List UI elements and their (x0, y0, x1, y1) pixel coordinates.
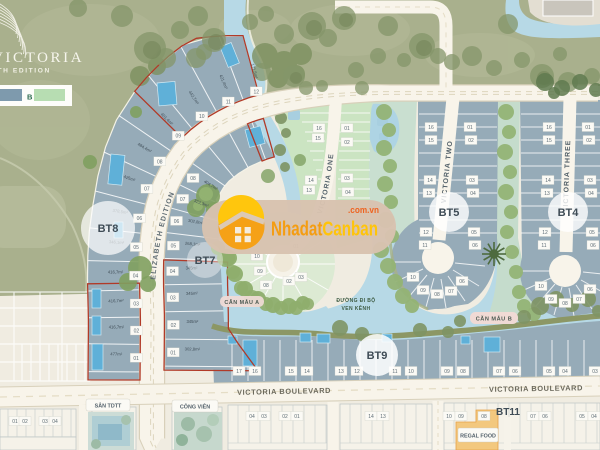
svg-text:07: 07 (496, 369, 502, 375)
svg-text:477m²: 477m² (110, 351, 123, 356)
svg-text:03: 03 (592, 369, 598, 375)
svg-text:04: 04 (591, 414, 597, 420)
svg-text:06: 06 (472, 243, 478, 249)
svg-text:02: 02 (586, 138, 592, 144)
svg-text:345m²: 345m² (186, 291, 199, 296)
svg-text:03: 03 (298, 275, 304, 281)
svg-text:08: 08 (562, 301, 568, 307)
svg-text:12: 12 (542, 230, 548, 236)
svg-text:05: 05 (133, 245, 139, 251)
svg-text:08: 08 (481, 414, 487, 420)
svg-text:10: 10 (254, 254, 260, 260)
svg-text:03: 03 (133, 302, 139, 308)
svg-text:11: 11 (541, 243, 546, 249)
svg-text:01: 01 (133, 356, 139, 362)
svg-text:11: 11 (422, 243, 427, 249)
svg-text:VICTORIA: VICTORIA (0, 50, 84, 66)
svg-text:BT8: BT8 (98, 223, 119, 235)
svg-text:08: 08 (157, 159, 163, 165)
svg-text:03: 03 (261, 414, 267, 420)
svg-text:08: 08 (460, 369, 466, 375)
svg-text:VEN KÊNH: VEN KÊNH (341, 304, 370, 312)
svg-text:04: 04 (52, 419, 58, 425)
svg-text:09: 09 (458, 414, 464, 420)
svg-text:17: 17 (236, 369, 242, 375)
svg-text:01: 01 (344, 126, 350, 132)
svg-text:BT9: BT9 (367, 350, 388, 362)
svg-text:06: 06 (590, 243, 596, 249)
svg-text:03: 03 (170, 295, 176, 301)
svg-text:02: 02 (171, 323, 177, 329)
svg-text:ĐƯỜNG ĐI BỘ: ĐƯỜNG ĐI BỘ (336, 296, 375, 304)
svg-text:13: 13 (380, 414, 386, 420)
svg-text:08: 08 (190, 176, 196, 182)
svg-text:B: B (27, 93, 33, 102)
svg-text:02: 02 (344, 140, 350, 146)
svg-text:05: 05 (471, 230, 477, 236)
svg-text:SÂN TDTT: SÂN TDTT (95, 403, 122, 410)
svg-text:01: 01 (170, 350, 176, 356)
svg-text:03: 03 (587, 178, 593, 184)
svg-text:02: 02 (22, 419, 28, 425)
svg-text:416,7m²: 416,7m² (108, 298, 124, 304)
svg-text:15: 15 (315, 136, 321, 142)
svg-text:15: 15 (288, 369, 294, 375)
svg-text:12: 12 (423, 230, 429, 236)
svg-text:02: 02 (468, 138, 474, 144)
svg-text:07: 07 (448, 289, 454, 295)
svg-text:13: 13 (544, 191, 550, 197)
svg-text:02: 02 (134, 329, 140, 335)
svg-text:10: 10 (199, 114, 205, 120)
svg-text:14: 14 (427, 178, 433, 184)
svg-text:BT11: BT11 (496, 407, 520, 418)
svg-text:VICTORIA BOULEVARD: VICTORIA BOULEVARD (489, 383, 583, 394)
svg-text:NORTH EDITION: NORTH EDITION (0, 68, 51, 75)
svg-text:04: 04 (562, 369, 568, 375)
svg-text:09: 09 (548, 297, 554, 303)
svg-text:REGAL FOOD: REGAL FOOD (460, 434, 496, 440)
svg-text:04: 04 (470, 191, 476, 197)
svg-text:345m²: 345m² (186, 319, 198, 324)
svg-text:CÔNG VIÊN: CÔNG VIÊN (180, 403, 210, 411)
svg-text:10: 10 (408, 369, 414, 375)
svg-text:16: 16 (546, 125, 552, 131)
svg-text:04: 04 (249, 414, 255, 420)
svg-text:03: 03 (42, 419, 48, 425)
svg-text:07: 07 (144, 187, 150, 193)
svg-text:05: 05 (589, 230, 595, 236)
svg-text:BT4: BT4 (558, 207, 580, 219)
svg-text:08: 08 (434, 292, 440, 298)
svg-text:12: 12 (354, 369, 360, 375)
svg-text:302,8m²: 302,8m² (185, 346, 201, 351)
svg-text:14: 14 (545, 178, 551, 184)
svg-text:416,7m²: 416,7m² (108, 270, 124, 275)
svg-text:04: 04 (588, 191, 594, 197)
svg-text:14: 14 (308, 178, 314, 184)
svg-text:BT5: BT5 (439, 207, 460, 219)
svg-text:16: 16 (316, 126, 322, 132)
svg-text:06: 06 (512, 369, 518, 375)
svg-text:14: 14 (368, 414, 374, 420)
svg-text:16: 16 (428, 125, 434, 131)
svg-text:08: 08 (263, 283, 269, 289)
svg-text:11: 11 (226, 100, 231, 106)
svg-text:01: 01 (12, 419, 18, 425)
svg-text:NhadatCanban: NhadatCanban (271, 219, 378, 241)
svg-text:BT7: BT7 (195, 255, 216, 267)
svg-text:06: 06 (459, 279, 465, 285)
svg-text:13: 13 (338, 369, 344, 375)
svg-text:09: 09 (176, 134, 182, 140)
svg-text:10: 10 (410, 275, 416, 281)
svg-text:06: 06 (137, 216, 143, 222)
svg-text:04: 04 (170, 269, 176, 275)
svg-text:03: 03 (469, 178, 475, 184)
svg-text:04: 04 (345, 190, 351, 196)
svg-text:CĂN MẪU A: CĂN MẪU A (224, 299, 259, 306)
svg-text:13: 13 (306, 188, 312, 194)
svg-text:02: 02 (286, 279, 292, 285)
svg-text:09: 09 (257, 269, 263, 275)
svg-text:07: 07 (576, 297, 582, 303)
svg-text:09: 09 (420, 288, 426, 294)
svg-text:01: 01 (467, 125, 473, 131)
svg-text:16: 16 (252, 369, 258, 375)
svg-text:04: 04 (133, 274, 139, 280)
svg-text:07: 07 (180, 197, 186, 203)
svg-text:07: 07 (530, 414, 536, 420)
svg-text:02: 02 (282, 414, 288, 420)
svg-text:01: 01 (585, 125, 591, 131)
svg-text:06: 06 (587, 287, 593, 293)
svg-text:13: 13 (426, 191, 432, 197)
svg-text:05: 05 (579, 414, 585, 420)
svg-text:.com.vn: .com.vn (348, 205, 379, 215)
svg-text:05: 05 (171, 244, 177, 250)
svg-text:15: 15 (428, 138, 434, 144)
svg-text:10: 10 (446, 414, 452, 420)
svg-text:05: 05 (546, 369, 552, 375)
svg-text:10: 10 (538, 284, 544, 290)
svg-text:12: 12 (254, 89, 260, 95)
svg-text:01: 01 (294, 414, 300, 420)
svg-text:06: 06 (542, 414, 548, 420)
svg-text:416,7m²: 416,7m² (109, 325, 125, 330)
svg-text:CĂN MẪU B: CĂN MẪU B (476, 316, 513, 323)
svg-text:15: 15 (546, 138, 552, 144)
svg-text:11: 11 (392, 369, 397, 375)
svg-text:03: 03 (344, 176, 350, 182)
svg-text:14: 14 (304, 369, 310, 375)
svg-text:09: 09 (444, 369, 450, 375)
svg-text:06: 06 (174, 219, 180, 225)
